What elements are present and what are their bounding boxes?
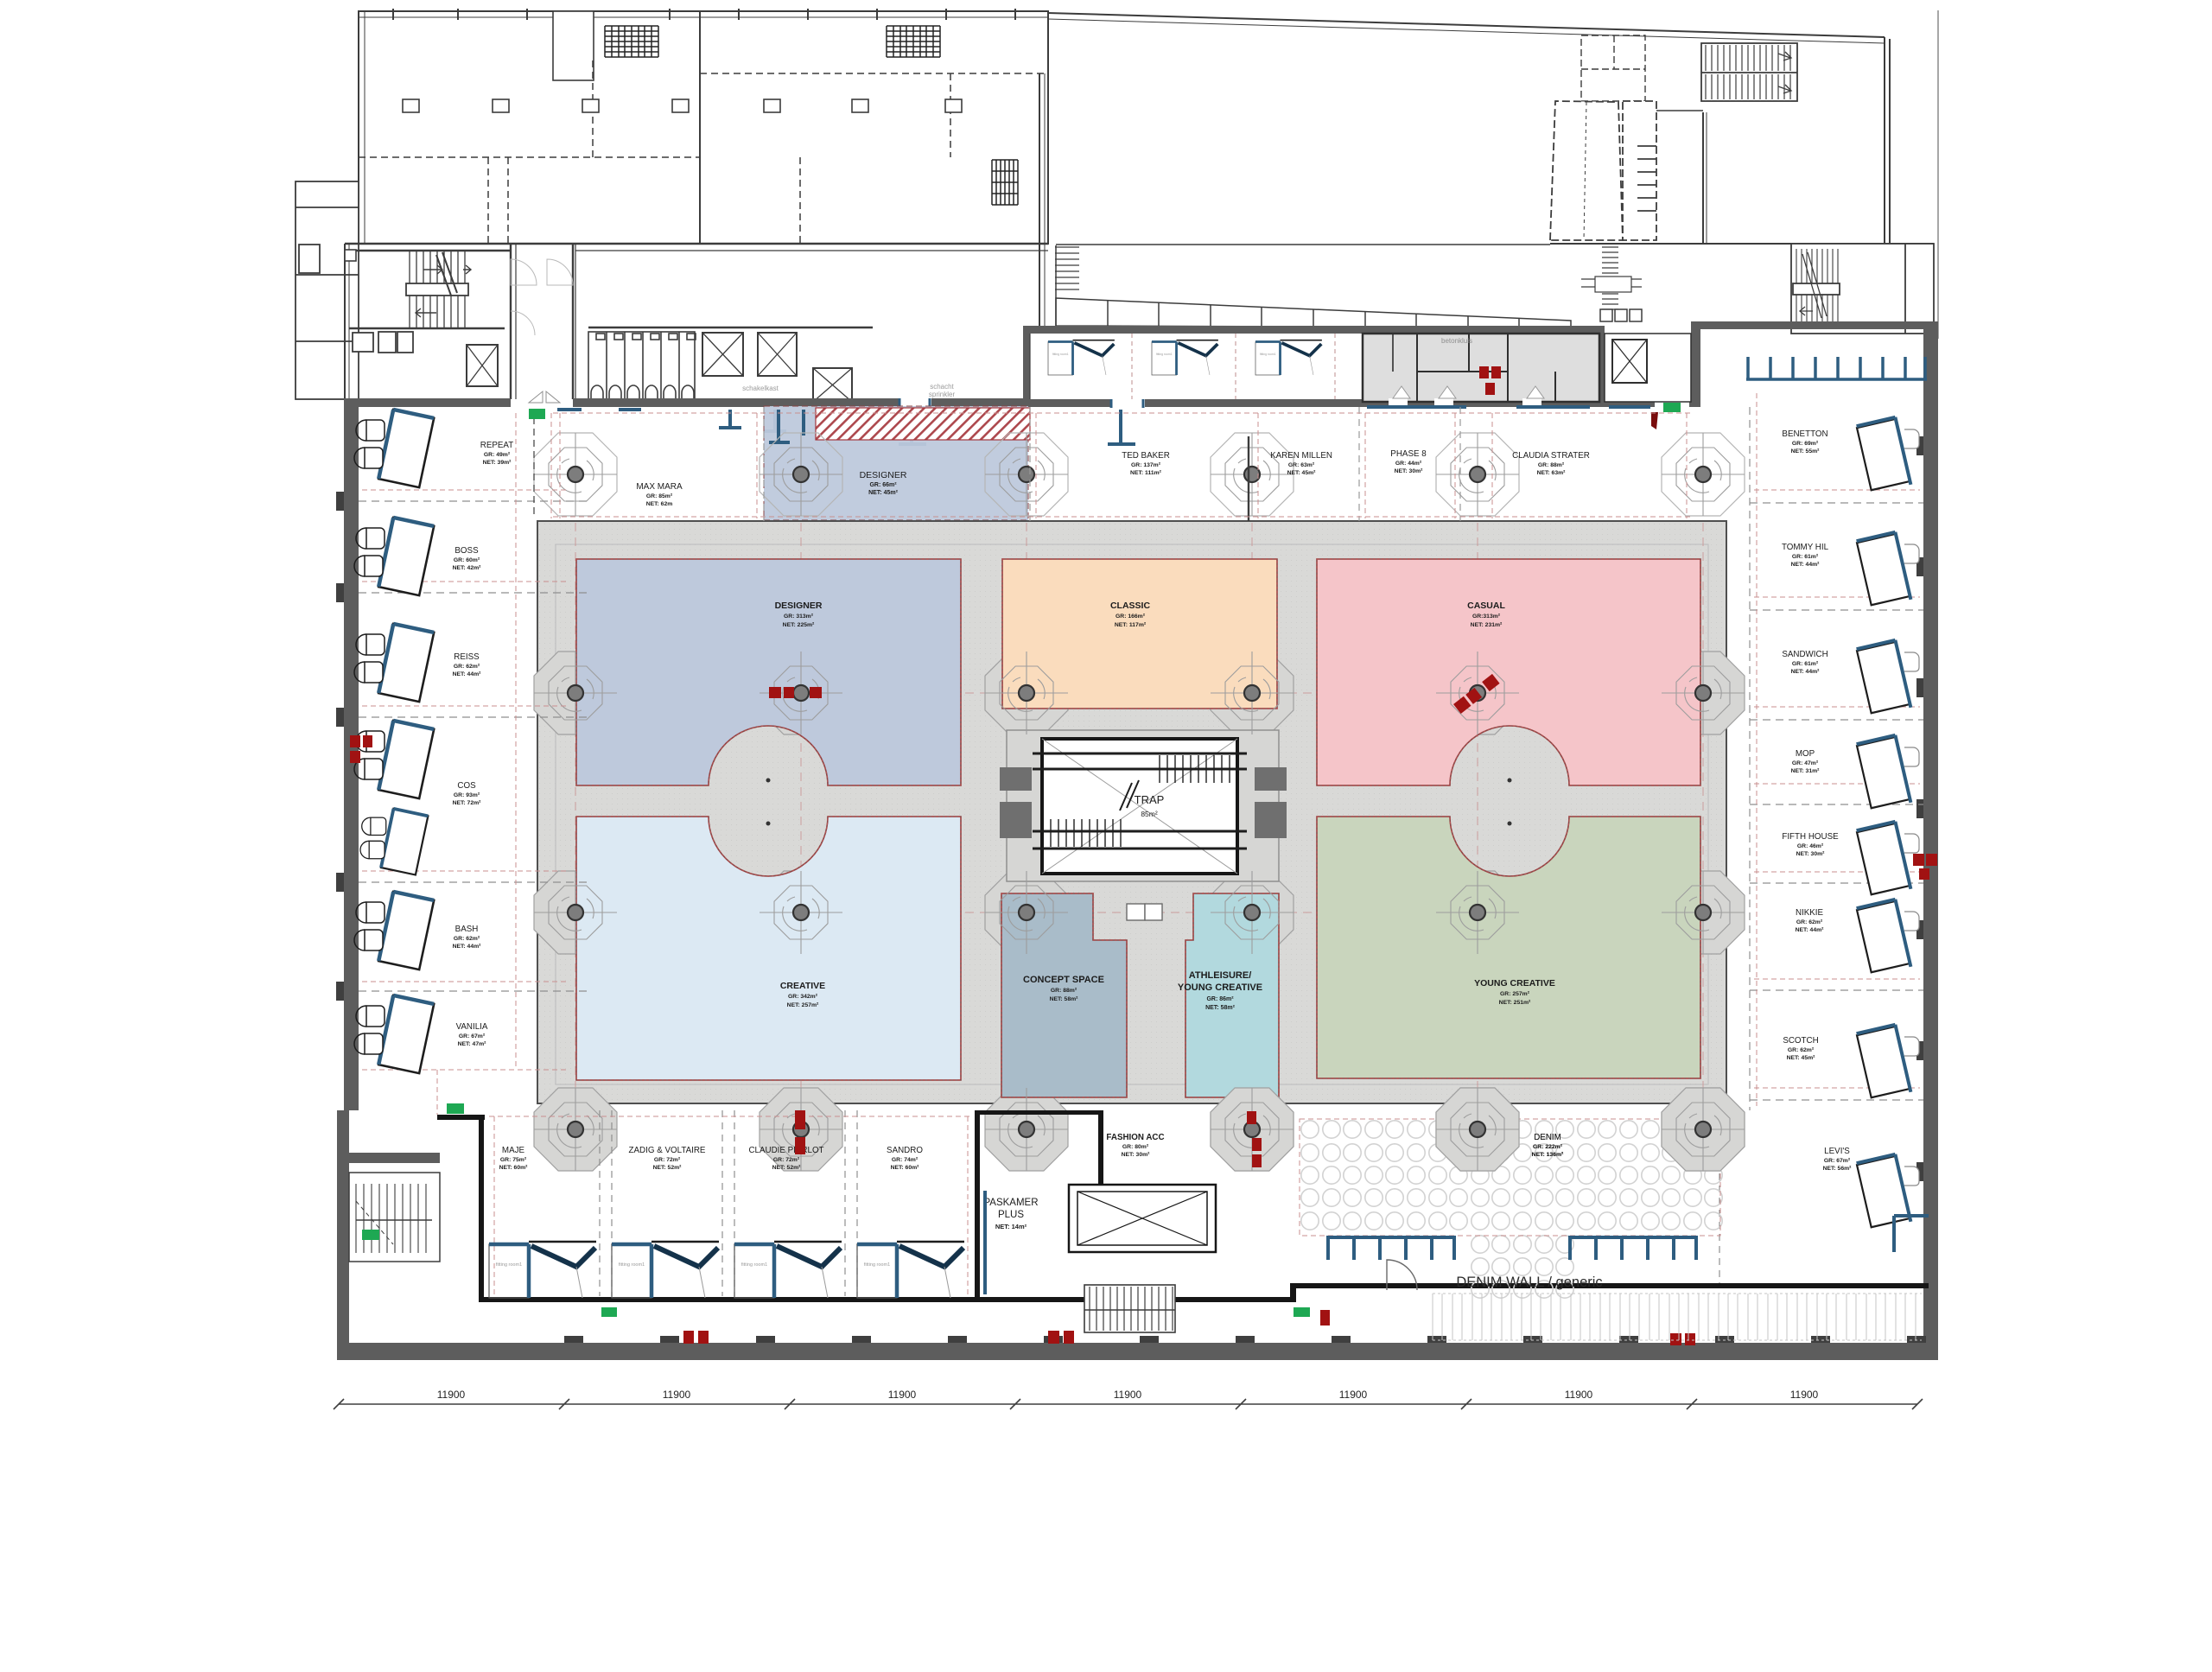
svg-text:85m²: 85m² <box>1141 810 1158 818</box>
svg-text:schacht: schacht <box>930 383 954 391</box>
svg-text:FASHION ACC: FASHION ACC <box>1106 1133 1164 1142</box>
svg-text:NET: 56m²: NET: 56m² <box>1823 1166 1853 1172</box>
svg-text:YOUNG CREATIVE: YOUNG CREATIVE <box>1178 982 1262 993</box>
svg-text:NET: 30m²: NET: 30m² <box>1395 468 1424 474</box>
svg-text:GR: 88m²: GR: 88m² <box>1538 462 1565 468</box>
svg-text:CREATIVE: CREATIVE <box>780 981 825 991</box>
svg-text:SANDWICH: SANDWICH <box>1782 650 1827 659</box>
svg-text:VANILIA: VANILIA <box>456 1022 488 1032</box>
svg-text:GR: 62m²: GR: 62m² <box>454 936 480 942</box>
svg-text:ZADIG & VOLTAIRE: ZADIG & VOLTAIRE <box>629 1146 706 1155</box>
svg-text:DESIGNER: DESIGNER <box>860 470 907 480</box>
svg-text:NET: 44m²: NET: 44m² <box>1791 562 1821 568</box>
svg-text:11900: 11900 <box>1565 1389 1593 1401</box>
svg-text:NET: 55m²: NET: 55m² <box>1791 448 1821 455</box>
svg-text:NET: 45m²: NET: 45m² <box>868 490 899 496</box>
svg-text:NET: 60m²: NET: 60m² <box>499 1165 529 1171</box>
svg-text:DENIM: DENIM <box>1534 1133 1561 1142</box>
svg-text:GR: 47m²: GR: 47m² <box>1792 760 1819 766</box>
svg-text:BOSS: BOSS <box>454 546 479 556</box>
svg-text:NET: 52m²: NET: 52m² <box>653 1165 683 1171</box>
svg-text:NET: 44m²: NET: 44m² <box>1796 927 1825 933</box>
svg-text:11900: 11900 <box>888 1389 917 1401</box>
svg-text:11900: 11900 <box>437 1389 466 1401</box>
svg-text:DESIGNER: DESIGNER <box>775 601 823 611</box>
svg-text:NET: 52m²: NET: 52m² <box>772 1165 802 1171</box>
svg-text:GR: 222m²: GR: 222m² <box>1533 1144 1563 1150</box>
svg-text:NET: 30m²: NET: 30m² <box>1796 851 1826 857</box>
svg-text:NET: 60m²: NET: 60m² <box>891 1165 920 1171</box>
svg-text:PASKAMER: PASKAMER <box>983 1198 1038 1208</box>
svg-text:GR: 137m²: GR: 137m² <box>1131 462 1161 468</box>
svg-text:BENETTON: BENETTON <box>1782 429 1827 439</box>
svg-text:GR: 86m²: GR: 86m² <box>1206 996 1234 1002</box>
svg-text:PLUS: PLUS <box>998 1210 1024 1220</box>
svg-text:MOP: MOP <box>1796 749 1815 759</box>
svg-text:CLAUDIE PIERLOT: CLAUDIE PIERLOT <box>748 1146 823 1155</box>
svg-text:GR: 61m²: GR: 61m² <box>1792 661 1819 667</box>
svg-text:NIKKIE: NIKKIE <box>1796 908 1824 918</box>
svg-text:GR:313m²: GR:313m² <box>1472 613 1501 620</box>
svg-text:GR: 93m²: GR: 93m² <box>454 792 480 798</box>
svg-text:DENIM WALL / generic: DENIM WALL / generic <box>1456 1275 1602 1290</box>
svg-text:GR: 62m²: GR: 62m² <box>454 664 480 670</box>
svg-text:NET: 251m²: NET: 251m² <box>1499 1000 1531 1006</box>
svg-text:GR: 257m²: GR: 257m² <box>1500 991 1530 997</box>
svg-text:MAX MARA: MAX MARA <box>636 482 683 492</box>
svg-text:NET: 62m: NET: 62m <box>646 501 673 507</box>
svg-text:GR: 75m²: GR: 75m² <box>500 1157 527 1163</box>
svg-text:GR: 80m²: GR: 80m² <box>1122 1144 1149 1150</box>
svg-text:11900: 11900 <box>1790 1389 1819 1401</box>
svg-text:GR: 61m²: GR: 61m² <box>1792 554 1819 560</box>
svg-text:GR: 62m²: GR: 62m² <box>1788 1047 1815 1053</box>
svg-text:NET: 63m²: NET: 63m² <box>1537 470 1567 476</box>
svg-text:NET: 30m²: NET: 30m² <box>1122 1152 1151 1158</box>
svg-text:GR: 72m²: GR: 72m² <box>654 1157 681 1163</box>
svg-text:GR: 342m²: GR: 342m² <box>788 994 818 1000</box>
svg-text:MAJE: MAJE <box>502 1146 525 1155</box>
svg-text:SANDRO: SANDRO <box>887 1146 923 1155</box>
svg-text:KAREN MILLEN: KAREN MILLEN <box>1270 451 1332 461</box>
svg-text:GR: 166m²: GR: 166m² <box>1116 613 1146 620</box>
svg-text:NET: 58m²: NET: 58m² <box>1205 1005 1236 1011</box>
svg-text:CONCEPT SPACE: CONCEPT SPACE <box>1023 975 1104 985</box>
svg-text:BASH: BASH <box>455 925 479 934</box>
svg-text:NET: 14m²: NET: 14m² <box>995 1223 1027 1230</box>
svg-text:COS: COS <box>457 781 476 791</box>
svg-text:FIFTH HOUSE: FIFTH HOUSE <box>1782 832 1839 842</box>
svg-text:GR: 72m²: GR: 72m² <box>773 1157 800 1163</box>
svg-text:NET: 44m²: NET: 44m² <box>453 671 482 677</box>
svg-text:ATHLEISURE/: ATHLEISURE/ <box>1189 970 1252 981</box>
svg-text:YOUNG CREATIVE: YOUNG CREATIVE <box>1474 978 1555 989</box>
svg-text:GR: 60m²: GR: 60m² <box>454 557 480 563</box>
svg-text:GR: 62m²: GR: 62m² <box>1796 919 1823 925</box>
svg-text:NET: 72m²: NET: 72m² <box>453 800 482 806</box>
svg-text:CLAUDIA STRATER: CLAUDIA STRATER <box>1512 451 1590 461</box>
svg-text:GR: 69m²: GR: 69m² <box>1792 441 1819 447</box>
svg-text:NET: 45m²: NET: 45m² <box>1787 1055 1816 1061</box>
svg-text:PHASE 8: PHASE 8 <box>1390 449 1427 459</box>
svg-text:NET: 45m²: NET: 45m² <box>1287 470 1317 476</box>
svg-text:CLASSIC: CLASSIC <box>1110 601 1151 611</box>
svg-text:GR: 63m²: GR: 63m² <box>1288 462 1315 468</box>
svg-text:GR: 88m²: GR: 88m² <box>1051 988 1077 994</box>
svg-text:NET: 225m²: NET: 225m² <box>783 622 815 628</box>
svg-text:NET: 257m²: NET: 257m² <box>787 1002 819 1008</box>
svg-text:GR: 85m²: GR: 85m² <box>646 493 673 499</box>
svg-text:GR: 44m²: GR: 44m² <box>1395 461 1422 467</box>
svg-text:NET: 44m²: NET: 44m² <box>453 944 482 950</box>
svg-text:CASUAL: CASUAL <box>1467 601 1505 611</box>
svg-text:GR: 67m²: GR: 67m² <box>1824 1158 1851 1164</box>
svg-text:GR: 46m²: GR: 46m² <box>1797 843 1824 849</box>
svg-text:NET: 117m²: NET: 117m² <box>1115 622 1147 628</box>
svg-text:11900: 11900 <box>1114 1389 1142 1401</box>
svg-text:REPEAT: REPEAT <box>480 441 513 450</box>
svg-text:TOMMY HIL: TOMMY HIL <box>1782 543 1829 552</box>
svg-text:NET: 136m²: NET: 136m² <box>1532 1152 1564 1158</box>
svg-text:sprinkler: sprinkler <box>929 391 956 398</box>
svg-text:NET: 44m²: NET: 44m² <box>1791 669 1821 675</box>
svg-text:NET: 31m²: NET: 31m² <box>1791 768 1821 774</box>
svg-text:NET: 111m²: NET: 111m² <box>1130 470 1162 476</box>
svg-text:GR: 66m²: GR: 66m² <box>869 482 897 488</box>
svg-text:11900: 11900 <box>1339 1389 1368 1401</box>
svg-text:GR: 49m²: GR: 49m² <box>484 452 511 458</box>
svg-text:TRAP: TRAP <box>1135 793 1165 806</box>
svg-text:NET: 42m²: NET: 42m² <box>453 565 482 571</box>
svg-text:NET: 47m²: NET: 47m² <box>458 1041 487 1047</box>
svg-text:schakelkast: schakelkast <box>742 385 779 392</box>
svg-text:GR: 74m²: GR: 74m² <box>892 1157 918 1163</box>
svg-text:TED BAKER: TED BAKER <box>1122 451 1170 461</box>
svg-text:GR: 67m²: GR: 67m² <box>459 1033 486 1039</box>
svg-text:GR: 313m²: GR: 313m² <box>784 613 814 620</box>
svg-text:11900: 11900 <box>663 1389 691 1401</box>
svg-text:NET: 58m²: NET: 58m² <box>1050 996 1079 1002</box>
svg-text:REISS: REISS <box>454 652 480 662</box>
svg-text:NET: 231m²: NET: 231m² <box>1471 622 1503 628</box>
svg-text:betonkluis: betonkluis <box>1441 337 1472 345</box>
svg-text:LEVI'S: LEVI'S <box>1824 1147 1850 1156</box>
svg-text:SCOTCH: SCOTCH <box>1783 1036 1818 1046</box>
svg-text:NET: 39m²: NET: 39m² <box>483 460 512 466</box>
